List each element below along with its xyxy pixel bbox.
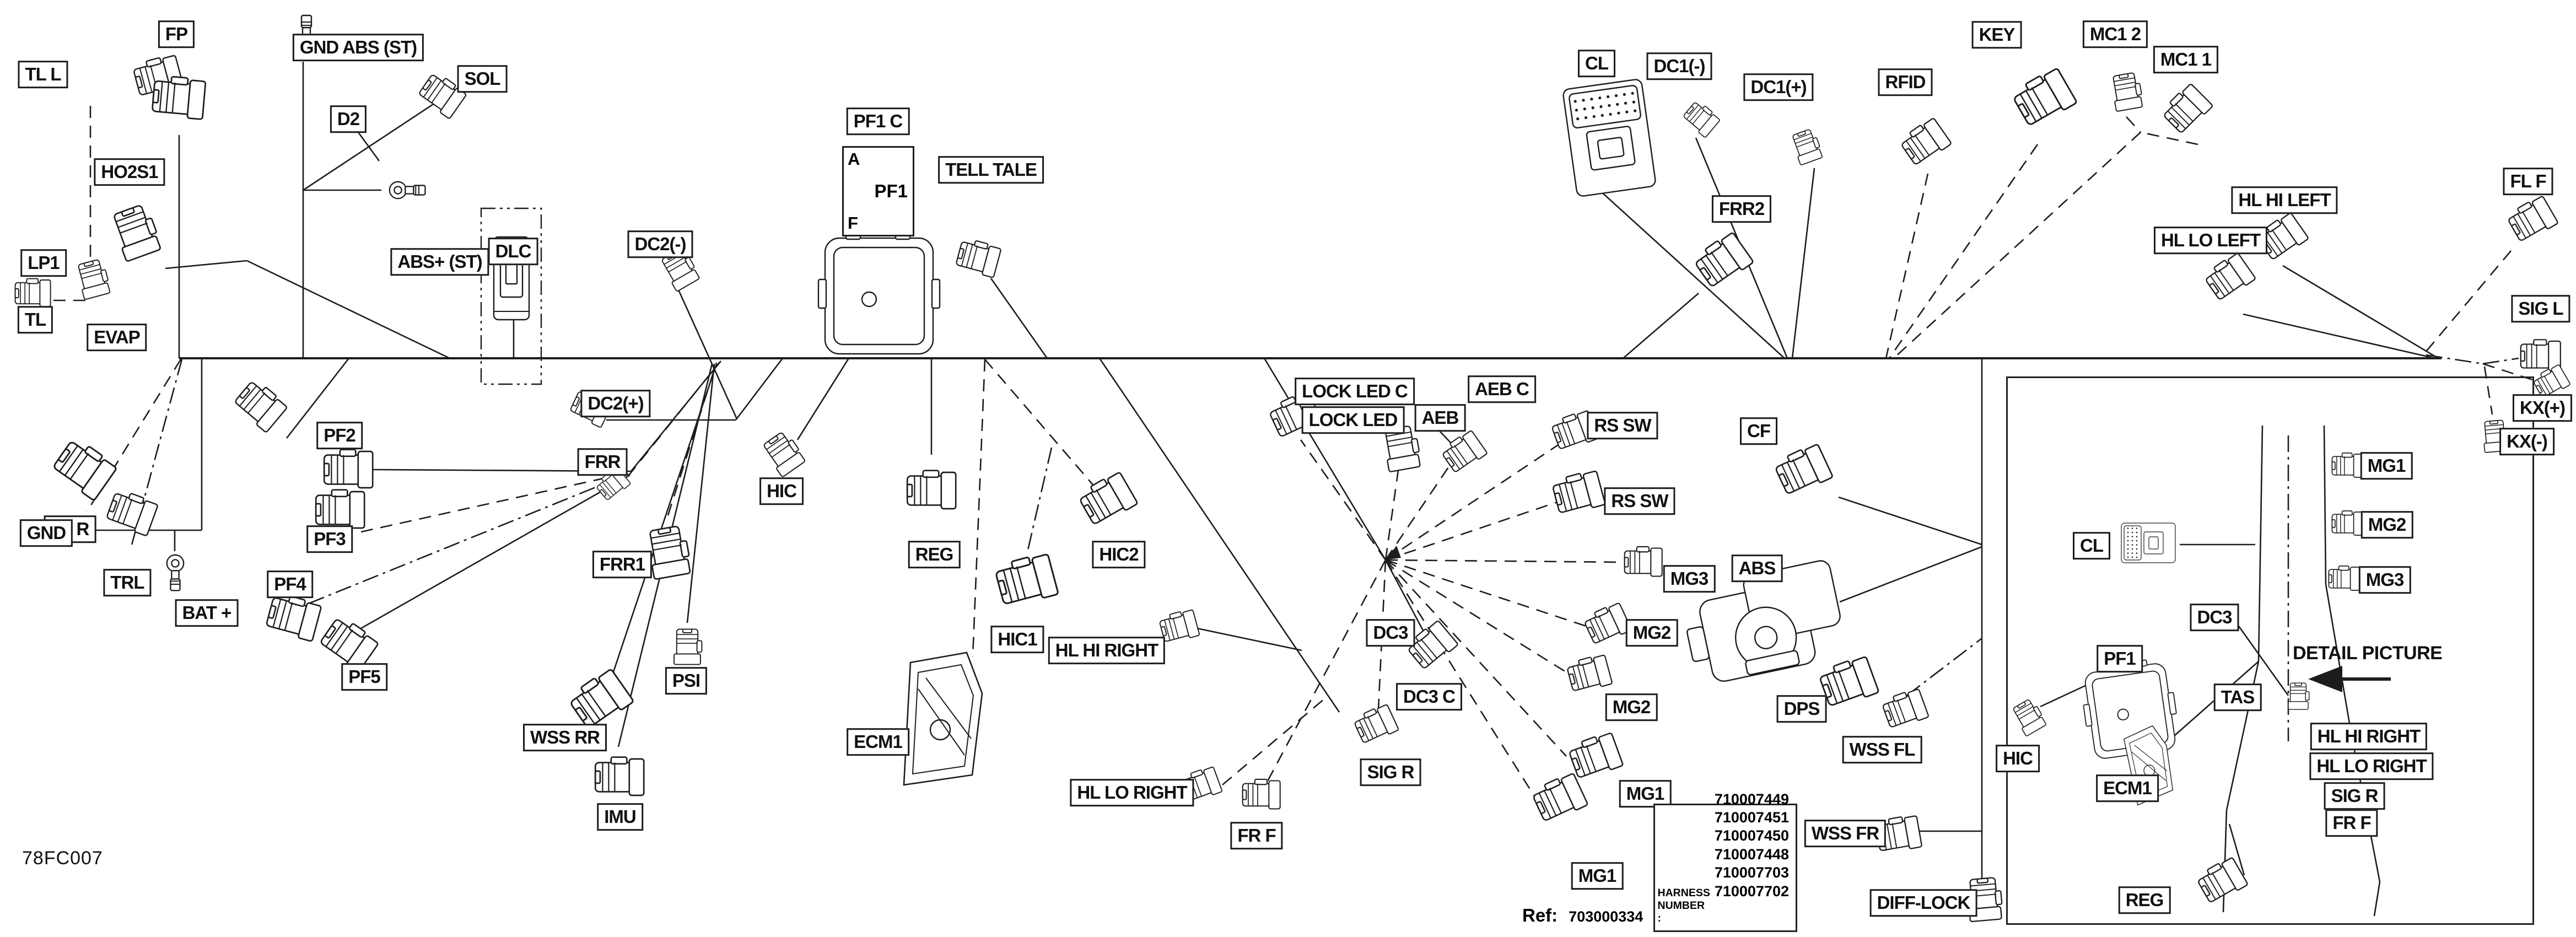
label-pf2: PF2 — [316, 422, 363, 449]
label-wss-rr: WSS RR — [523, 724, 607, 751]
connector-icon-bat-ring — [167, 555, 184, 591]
label-lock-led: LOCK LED — [1302, 406, 1405, 434]
label-hic: HIC — [759, 477, 804, 505]
harness-number-list: 7100074497100074517100074507100074487100… — [1659, 790, 1789, 882]
connector-icon-hic1 — [994, 552, 1058, 608]
connector-icon-trl — [105, 488, 159, 536]
label-bat: BAT + — [175, 599, 239, 627]
ref-value: 703000334 — [1569, 908, 1643, 925]
connector-icon-frr1 — [646, 525, 692, 580]
pf1-fuse-legend-box: A F PF1 — [842, 146, 914, 236]
label-mg2: MG2 — [1605, 693, 1658, 721]
harness-wire-31 — [736, 358, 783, 420]
connector-icon-key — [2011, 67, 2077, 129]
label-reg: REG — [908, 541, 961, 568]
label-dc1: DC1(-) — [1647, 52, 1712, 80]
label-dc3: DC3 — [2190, 604, 2239, 631]
label-cl: CL — [2073, 532, 2110, 559]
connector-icon-cl — [1562, 79, 1656, 197]
label-rs-sw: RS SW — [1587, 412, 1658, 439]
connector-icon-dc1-neg — [1682, 99, 1721, 138]
label-sig-r: SIG R — [1360, 758, 1421, 786]
label-mg2: MG2 — [1626, 619, 1678, 647]
harness-wire-63 — [2283, 266, 2438, 358]
label-reg: REG — [2119, 886, 2171, 914]
harness-wire-44 — [1386, 496, 1575, 560]
harness-number-table: 7100074497100074517100074507100074487100… — [1653, 804, 1797, 932]
connector-icon-mg2-b — [1566, 654, 1612, 694]
harness-wire-37 — [1197, 628, 1302, 650]
label-ecm1: ECM1 — [2096, 774, 2159, 802]
pf1-corner-a: A — [848, 149, 860, 169]
connector-icon-evap — [233, 378, 289, 433]
harness-wire-21 — [361, 475, 630, 628]
label-sig-l: SIG L — [2511, 295, 2570, 322]
label-rs-sw: RS SW — [1604, 487, 1675, 515]
harness-wire-5 — [358, 132, 379, 161]
label-dc1: DC1(+) — [1743, 73, 1813, 101]
harness-wire-48 — [1386, 560, 1566, 756]
label-diff-lock: DIFF-LOCK — [1870, 889, 1977, 917]
connector-icon-pf1-module — [818, 231, 940, 354]
label-mg3: MG3 — [2359, 566, 2411, 594]
label-hl-lo-right: HL LO RIGHT — [2309, 752, 2433, 780]
harness-number-row: 710007448 — [1659, 846, 1789, 864]
label-fp: FP — [158, 20, 195, 48]
harness-wire-67 — [2483, 358, 2519, 364]
label-cl: CL — [1578, 50, 1615, 77]
connector-icon-sig-r — [1352, 703, 1399, 745]
label-lock-led-c: LOCK LED C — [1295, 378, 1415, 405]
label-ho2s1: HO2S1 — [94, 158, 165, 186]
label-kx: KX(+) — [2513, 394, 2572, 422]
connector-icon-abs-plus-ring — [390, 182, 425, 198]
connector-icon-frr2 — [1692, 231, 1754, 290]
harness-wire-58 — [1886, 174, 1928, 358]
detail-picture-caption: DETAIL PICTURE — [2293, 643, 2442, 664]
connector-icon-tl-r — [51, 436, 118, 500]
harness-wire-57 — [1623, 293, 1699, 358]
label-pf4: PF4 — [267, 570, 313, 598]
connector-icon-mg3 — [1625, 547, 1662, 577]
label-dc3: DC3 — [1366, 619, 1415, 647]
label-frr1: FRR1 — [592, 551, 652, 578]
label-pf1-c: PF1 C — [847, 107, 910, 135]
connector-icon-psi — [674, 629, 702, 665]
label-trl: TRL — [103, 569, 151, 596]
label-rfid: RFID — [1878, 68, 1933, 96]
harness-wire-64 — [2243, 314, 2435, 358]
label-dc2: DC2(+) — [580, 390, 650, 417]
label-wss-fl: WSS FL — [1842, 736, 1922, 763]
label-aeb: AEB — [1415, 404, 1466, 432]
label-hl-hi-right: HL HI RIGHT — [1048, 637, 1165, 664]
harness-wire-7 — [165, 261, 247, 268]
harness-number-row: 710007449 — [1659, 790, 1789, 809]
drawing-code: 78FC007 — [22, 848, 103, 869]
label-cf: CF — [1740, 417, 1777, 445]
label-frr2: FRR2 — [1712, 195, 1771, 223]
harness-number-value: 710007702 — [1715, 883, 1789, 900]
label-hl-lo-left: HL LO LEFT — [2154, 227, 2267, 254]
label-sol: SOL — [457, 65, 508, 93]
harness-wire-35 — [973, 359, 985, 657]
label-dlc: DLC — [488, 238, 538, 265]
harness-wire-52 — [1263, 560, 1386, 789]
ref-label: Ref: — [1522, 905, 1558, 926]
label-aeb-c: AEB C — [1468, 375, 1536, 403]
label-hl-hi-right: HL HI RIGHT — [2310, 723, 2427, 750]
label-gnd: GND — [20, 519, 73, 547]
harness-wire-59 — [1889, 144, 2038, 358]
label-mg1: MG1 — [2361, 452, 2413, 480]
label-kx: KX(-) — [2499, 428, 2555, 455]
label-mg3: MG3 — [1663, 565, 1716, 593]
connector-icon-pf3 — [316, 490, 364, 528]
harness-wire-28 — [797, 358, 849, 440]
connector-icon-fl-f — [2505, 195, 2558, 244]
wiring-diagram-canvas: TL LFPGND ABS (ST)D2SOLHO2S1LP1EVAPTLABS… — [0, 0, 2576, 937]
pf1-center-label: PF1 — [874, 181, 908, 202]
harness-number-row: 710007450 — [1659, 827, 1789, 845]
label-dc3-c: DC3 C — [1396, 683, 1462, 710]
label-hic1: HIC1 — [990, 626, 1044, 653]
harness-wire-42 — [1386, 464, 1451, 560]
connector-icon-fp — [152, 75, 206, 119]
label-evap: EVAP — [87, 324, 147, 351]
connector-icon-dc1-pos — [1790, 128, 1824, 165]
label-abs: ABS — [1732, 554, 1783, 582]
harness-wire-61 — [2141, 132, 2198, 144]
connector-icon-reg — [907, 471, 956, 509]
label-fl-f: FL F — [2503, 168, 2553, 195]
label-wss-fr: WSS FR — [1804, 820, 1886, 847]
connector-icon-hl-lo-left — [2202, 251, 2256, 303]
pf1-corner-f: F — [848, 213, 858, 233]
label-mc1-2: MC1 2 — [2083, 20, 2148, 48]
label-mg1: MG1 — [1571, 862, 1624, 890]
harness-wire-50 — [1301, 440, 1386, 560]
label-sig-r: SIG R — [2324, 782, 2385, 810]
label-fr-f: FR F — [2325, 809, 2378, 837]
label-d2: D2 — [330, 105, 367, 133]
connector-icon-mc1-1 — [2160, 83, 2213, 136]
harness-wire-65 — [2425, 251, 2511, 353]
harness-number-caption: HARNESS NUMBER : — [1657, 887, 1710, 925]
label-frr: FRR — [578, 448, 628, 476]
connector-icon-hic2 — [1077, 470, 1138, 527]
connector-icon-rfid — [1898, 116, 1952, 168]
label-tl: TL — [18, 306, 53, 333]
label-tell-tale: TELL TALE — [938, 156, 1044, 184]
harness-wire-38 — [1222, 696, 1328, 785]
label-mg2: MG2 — [2361, 511, 2413, 538]
harness-wire-71 — [1840, 547, 1982, 602]
connector-icon-cf — [1773, 443, 1833, 498]
harness-wire-60 — [2126, 117, 2141, 132]
connector-icon-rs-sw-2 — [1551, 469, 1605, 516]
connector-icon-imu — [595, 757, 644, 795]
harness-wire-34 — [1028, 448, 1052, 550]
label-mc1-1: MC1 1 — [2153, 46, 2218, 73]
fanout-arrow — [1386, 546, 1401, 560]
label-pf5: PF5 — [341, 663, 387, 691]
connector-icon-mc1-2 — [2110, 72, 2144, 111]
label-tl-l: TL L — [18, 61, 68, 88]
harness-wire-56 — [1792, 168, 1814, 358]
connector-icon-aeb — [1440, 429, 1487, 475]
connector-icon-sig-l — [2521, 340, 2561, 371]
label-lp1: LP1 — [20, 249, 67, 277]
connector-icon-tl — [15, 279, 51, 306]
label-imu: IMU — [597, 803, 643, 831]
connector-icon-mg2-a — [1582, 601, 1631, 647]
harness-number-row: 710007451 — [1659, 809, 1789, 827]
label-abs-st: ABS+ (ST) — [390, 248, 489, 276]
connector-icon-mg1-a — [1567, 731, 1624, 781]
label-dps: DPS — [1777, 695, 1827, 723]
label-pf3: PF3 — [306, 525, 353, 553]
connector-icon-dps — [1818, 655, 1879, 710]
connector-icon-ecm1 — [904, 653, 982, 785]
label-dc2: DC2(-) — [628, 230, 693, 258]
harness-wire-45 — [1386, 560, 1623, 562]
harness-wire-19 — [361, 473, 628, 532]
connector-icon-pf2 — [324, 450, 373, 488]
connector-icon-mg1-b — [1530, 772, 1588, 824]
label-hic2: HIC2 — [1092, 541, 1145, 568]
harness-number-row: 710007703 — [1659, 864, 1789, 882]
label-tas: TAS — [2214, 683, 2262, 711]
harness-wire-74 — [1907, 638, 1982, 696]
harness-wire-22 — [616, 363, 719, 492]
connector-icon-wss-fl — [1881, 687, 1929, 730]
label-gnd-abs-st: GND ABS (ST) — [293, 34, 424, 61]
connector-icon-ho2s1 — [110, 203, 163, 261]
label-hl-hi-left: HL HI LEFT — [2231, 186, 2337, 214]
harness-wire-24 — [687, 364, 714, 623]
connector-icon-wss-rr — [567, 667, 634, 732]
label-fr-f: FR F — [1230, 822, 1282, 849]
connector-icon-tell-tale — [955, 237, 1001, 277]
label-psi: PSI — [665, 667, 707, 694]
label-pf1: PF1 — [2097, 645, 2143, 672]
harness-wire-62 — [1894, 132, 2141, 358]
label-hic: HIC — [1996, 745, 2040, 772]
connector-icon-pf4 — [265, 592, 322, 642]
label-key: KEY — [1972, 21, 2022, 49]
harness-wire-32 — [679, 291, 737, 419]
connector-icon-fr-f — [1243, 779, 1280, 809]
connector-icon-lp1 — [76, 259, 111, 300]
harness-wire-70 — [1839, 497, 1982, 545]
harness-wire-29 — [991, 278, 1047, 358]
label-hl-lo-right: HL LO RIGHT — [1070, 779, 1194, 806]
reference-line: Ref: 703000334 — [1522, 905, 1643, 926]
label-ecm1: ECM1 — [847, 728, 909, 756]
detail-picture-box — [2006, 376, 2534, 925]
